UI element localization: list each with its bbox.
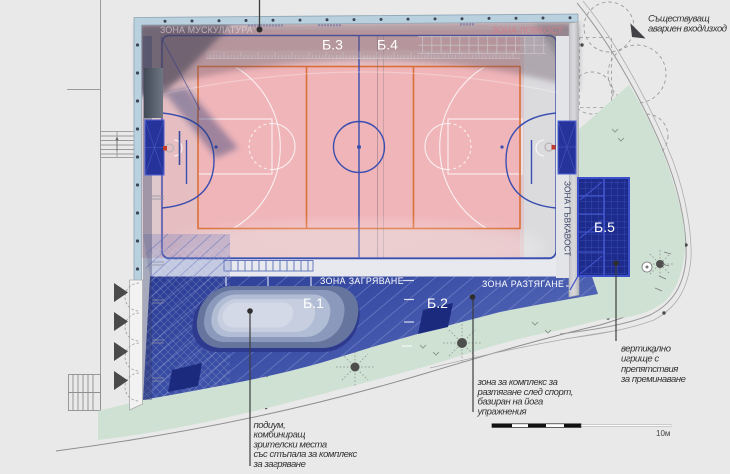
svg-text:за преминаване: за преминаване bbox=[620, 374, 686, 385]
svg-text:Б.2: Б.2 bbox=[427, 295, 448, 311]
svg-text:упражнения: упражнения bbox=[477, 406, 527, 417]
svg-text:ЗОНА МУСКУЛАТУРА: ЗОНА МУСКУЛАТУРА bbox=[160, 25, 253, 35]
svg-text:Б.1: Б.1 bbox=[303, 295, 324, 311]
svg-text:ЗОНА ЗАГРЯВАНЕ: ЗОНА ЗАГРЯВАНЕ bbox=[320, 276, 404, 286]
svg-text:Б.5: Б.5 bbox=[594, 219, 615, 235]
svg-text:10м: 10м bbox=[656, 429, 670, 438]
svg-text:ЗОНА ЛОВКОСТ: ЗОНА ЛОВКОСТ bbox=[492, 26, 563, 36]
svg-text:авариен вход/изход: авариен вход/изход bbox=[648, 24, 727, 35]
svg-text:ЗОНА РАЗТЯГАНЕ: ЗОНА РАЗТЯГАНЕ bbox=[482, 279, 564, 289]
svg-text:Б.4: Б.4 bbox=[377, 37, 398, 53]
svg-text:ЗОНА ГЪВКАВОСТ: ЗОНА ГЪВКАВОСТ bbox=[563, 181, 573, 256]
svg-text:Б.3: Б.3 bbox=[322, 37, 343, 53]
svg-text:за загряване: за загряване bbox=[253, 459, 306, 470]
